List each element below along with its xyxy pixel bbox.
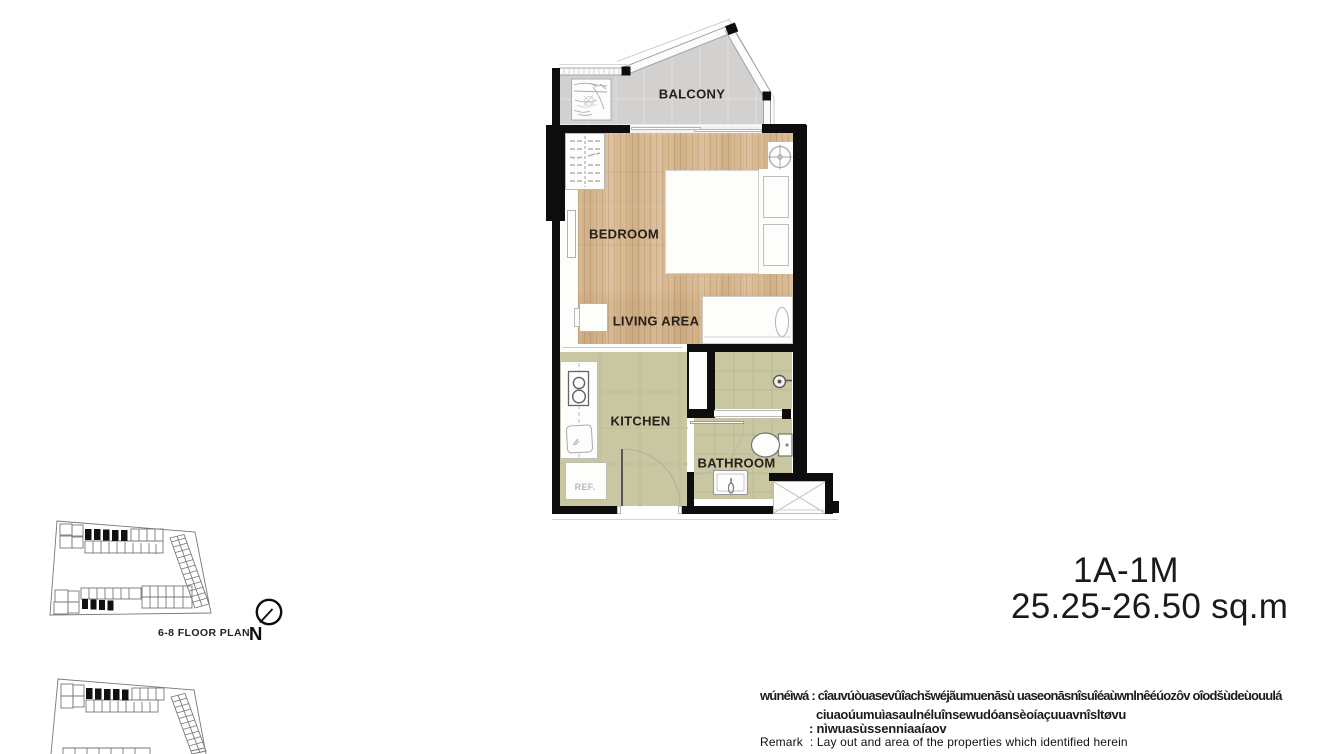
- svg-text:N: N: [249, 623, 262, 644]
